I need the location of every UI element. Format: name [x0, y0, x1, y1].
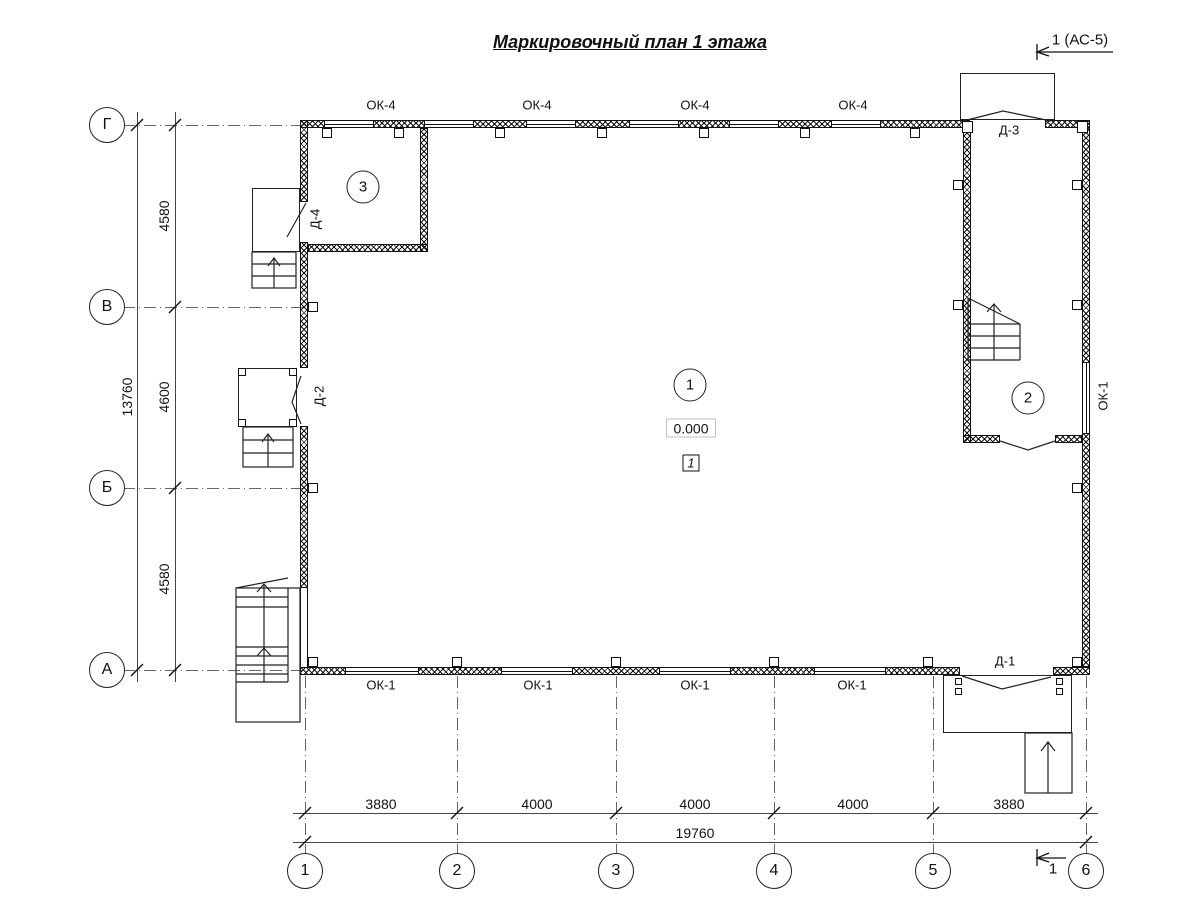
- dim-left-total: 13760: [120, 378, 134, 417]
- axis-circle-col-6: 6: [1068, 853, 1104, 889]
- axis-label: В: [102, 298, 113, 316]
- axis-label: Б: [102, 479, 113, 497]
- room-circle-1: 1: [674, 369, 707, 402]
- floor-type-value: 1: [687, 456, 694, 471]
- door-swings: [287, 111, 1055, 689]
- door-label-d3: Д-3: [999, 124, 1019, 137]
- dim-bottom-total: 19760: [676, 826, 715, 840]
- section-mark-bottom: 1: [1049, 862, 1057, 877]
- window-label-ok1: ОК-1: [523, 679, 552, 692]
- dim-bottom-segment: 4000: [837, 797, 868, 811]
- section-mark-top: 1 (АС-5): [1052, 33, 1108, 48]
- door-label-d4: Д-4: [309, 209, 322, 229]
- axis-label: 6: [1082, 862, 1091, 880]
- axis-label: А: [102, 661, 113, 679]
- axis-circle-col-3: 3: [598, 853, 634, 889]
- dim-left-segment: 4600: [157, 381, 171, 412]
- elevation-mark: 0.000: [666, 419, 716, 438]
- stairs-d4: [252, 252, 296, 288]
- stairs-d1: [1025, 733, 1072, 793]
- room-number: 1: [686, 377, 694, 394]
- dim-left-segment: 4580: [157, 200, 171, 231]
- elevation-value: 0.000: [673, 420, 708, 436]
- axis-circle-col-5: 5: [915, 853, 951, 889]
- stairs-southwest: [236, 578, 300, 722]
- dim-bottom-segment: 4000: [679, 797, 710, 811]
- window-label-ok4: ОК-4: [838, 99, 867, 112]
- axis-circle-col-4: 4: [756, 853, 792, 889]
- window-label-ok4: ОК-4: [680, 99, 709, 112]
- axis-label: 2: [453, 862, 462, 880]
- window-label-ok1-right: ОК-1: [1097, 381, 1110, 410]
- dim-left-segment: 4580: [157, 563, 171, 594]
- linework-overlay: [0, 0, 1200, 900]
- axis-circle-row-g: Г: [89, 107, 125, 143]
- axis-circle-row-a: А: [89, 652, 125, 688]
- axis-circle-col-2: 2: [439, 853, 475, 889]
- floor-type-mark: 1: [683, 455, 700, 472]
- window-label-ok1: ОК-1: [680, 679, 709, 692]
- room-circle-2: 2: [1012, 382, 1045, 415]
- window-label-ok1: ОК-1: [366, 679, 395, 692]
- axis-label: Г: [103, 116, 112, 134]
- dimension-ticks: [131, 119, 1092, 848]
- dim-bottom-segment: 4000: [521, 797, 552, 811]
- window-label-ok4: ОК-4: [522, 99, 551, 112]
- axis-label: 5: [929, 862, 938, 880]
- axis-circle-row-v: В: [89, 289, 125, 325]
- window-label-ok4: ОК-4: [366, 99, 395, 112]
- axis-circle-col-1: 1: [287, 853, 323, 889]
- room-number: 2: [1024, 390, 1032, 407]
- axis-label: 4: [770, 862, 779, 880]
- door-label-d2: Д-2: [313, 386, 326, 406]
- window-label-ok1: ОК-1: [837, 679, 866, 692]
- dim-bottom-segment: 3880: [365, 797, 396, 811]
- room-circle-3: 3: [347, 171, 380, 204]
- floor-plan-sheet: Маркировочный план 1 этажа: [0, 0, 1200, 900]
- axis-label: 3: [612, 862, 621, 880]
- stairs-room2: [968, 298, 1020, 360]
- dim-bottom-segment: 3880: [993, 797, 1024, 811]
- axis-circle-row-b: Б: [89, 470, 125, 506]
- stairs-d2: [243, 427, 293, 467]
- axis-label: 1: [301, 862, 310, 880]
- door-label-d1: Д-1: [995, 655, 1015, 668]
- room-number: 3: [359, 179, 367, 196]
